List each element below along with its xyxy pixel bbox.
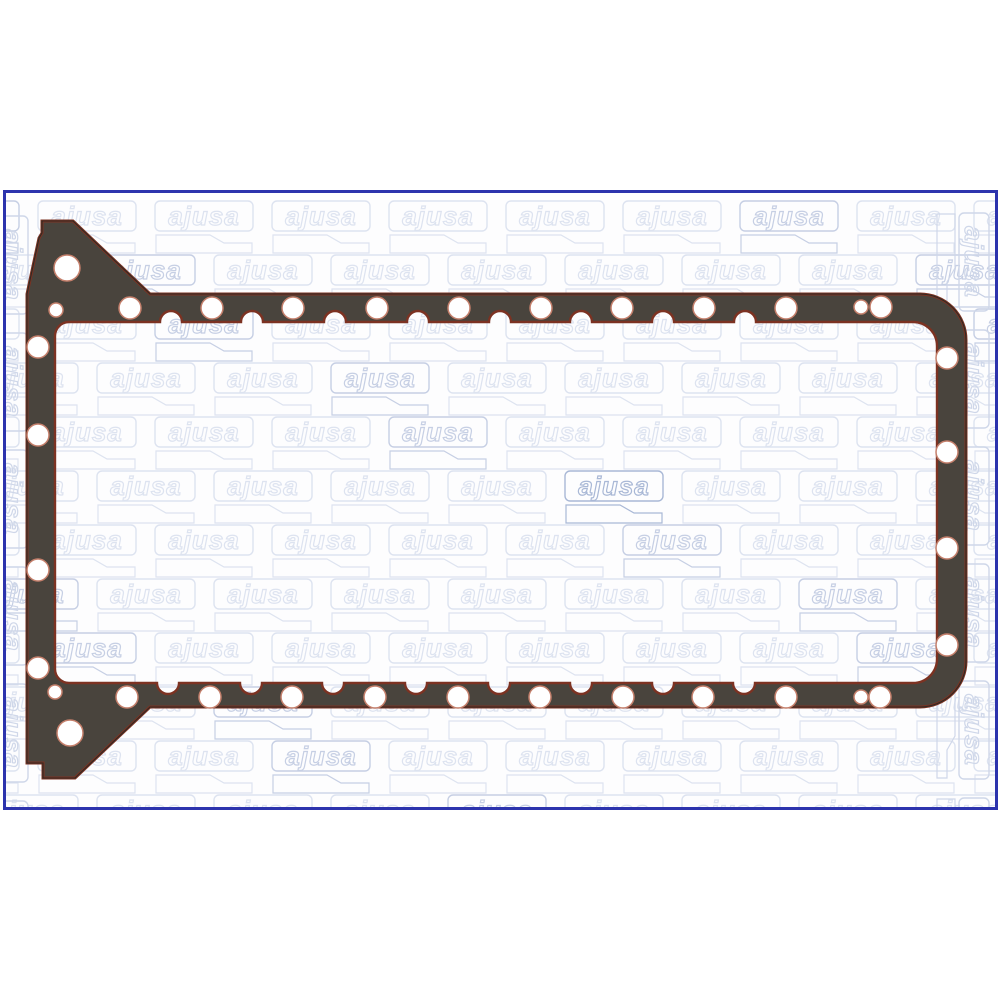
watermark-logo: ajusa	[565, 795, 663, 807]
watermark-brand-text: ajusa	[402, 525, 474, 555]
watermark-brand-text: ajusa	[929, 795, 995, 807]
watermark-logo: ajusa	[448, 471, 546, 523]
watermark-brand-text: ajusa	[753, 633, 825, 663]
watermark-brand-text: ajusa	[636, 417, 708, 447]
watermark-brand-text: ajusa	[753, 417, 825, 447]
watermark-logo: ajusa	[97, 471, 195, 523]
watermark-logo: ajusa	[740, 741, 838, 793]
watermark-logo: ajusa	[6, 684, 28, 782]
watermark-brand-text: ajusa	[695, 579, 767, 609]
watermark-brand-text: ajusa	[168, 417, 240, 447]
watermark-brand-text: ajusa	[402, 417, 474, 447]
watermark-brand-text: ajusa	[110, 471, 182, 501]
watermark-brand-text: ajusa	[110, 795, 182, 807]
watermark-logo: ajusa	[389, 525, 487, 577]
bolt-hole	[936, 441, 958, 463]
watermark-brand-text: ajusa	[753, 201, 825, 231]
watermark-brand-text: ajusa	[695, 795, 767, 807]
bolt-hole	[447, 686, 469, 708]
watermark-brand-text: ajusa	[51, 525, 123, 555]
watermark-brand-text: ajusa	[6, 463, 28, 535]
watermark-brand-text: ajusa	[870, 633, 942, 663]
watermark-logo: ajusa	[272, 201, 370, 253]
bolt-hole	[201, 297, 223, 319]
watermark-logo: ajusa	[740, 525, 838, 577]
watermark-brand-text: ajusa	[110, 363, 182, 393]
watermark-logo: ajusa	[448, 579, 546, 631]
watermark-logo: ajusa	[272, 525, 370, 577]
watermark-logo: ajusa	[155, 201, 253, 253]
watermark-brand-text: ajusa	[578, 579, 650, 609]
bolt-hole	[116, 686, 138, 708]
watermark-brand-text: ajusa	[636, 741, 708, 771]
bolt-hole	[27, 559, 49, 581]
watermark-layer: ajusaajusaajusaajusaajusaajusaajusaajusa…	[6, 201, 995, 807]
watermark-logo: ajusa	[506, 633, 604, 685]
watermark-logo: ajusa	[623, 633, 721, 685]
bolt-hole	[854, 300, 868, 314]
watermark-logo: ajusa	[565, 363, 663, 415]
bolt-hole	[870, 296, 892, 318]
watermark-brand-text: ajusa	[344, 255, 416, 285]
watermark-brand-text: ajusa	[6, 580, 28, 652]
watermark-brand-text: ajusa	[519, 525, 591, 555]
watermark-logo: ajusa	[6, 417, 19, 469]
watermark-logo: ajusa	[272, 417, 370, 469]
watermark-logo: ajusa	[799, 795, 897, 807]
watermark-brand-text: ajusa	[6, 229, 28, 301]
watermark-brand-text: ajusa	[461, 795, 533, 807]
bolt-hole	[27, 424, 49, 446]
watermark-brand-text: ajusa	[695, 363, 767, 393]
watermark-brand-text: ajusa	[753, 741, 825, 771]
bolt-hole	[54, 255, 80, 281]
watermark-brand-text: ajusa	[168, 633, 240, 663]
watermark-logo: ajusa	[214, 471, 312, 523]
watermark-logo: ajusa	[506, 525, 604, 577]
watermark-brand-text: ajusa	[168, 741, 240, 771]
watermark-brand-text: ajusa	[461, 363, 533, 393]
bolt-hole	[936, 347, 958, 369]
watermark-brand-text: ajusa	[227, 255, 299, 285]
bolt-hole	[854, 690, 868, 704]
watermark-logo: ajusa	[565, 471, 663, 523]
watermark-logo: ajusa	[331, 471, 429, 523]
watermark-logo: ajusa	[799, 471, 897, 523]
watermark-logo: ajusa	[6, 216, 28, 314]
watermark-brand-text: ajusa	[578, 795, 650, 807]
watermark-brand-text: ajusa	[51, 633, 123, 663]
product-photo: ajusaajusaajusaajusaajusaajusaajusaajusa…	[6, 193, 995, 807]
watermark-logo: ajusa	[155, 633, 253, 685]
watermark-brand-text: ajusa	[51, 417, 123, 447]
watermark-logo: ajusa	[331, 795, 429, 807]
bolt-hole	[936, 537, 958, 559]
watermark-logo: ajusa	[857, 201, 955, 253]
watermark-logo: ajusa	[272, 741, 370, 793]
watermark-logo: ajusa	[682, 579, 780, 631]
watermark-logo: ajusa	[682, 471, 780, 523]
watermark-logo: ajusa	[857, 741, 955, 793]
watermark-brand-text: ajusa	[695, 471, 767, 501]
watermark-brand-text: ajusa	[812, 363, 884, 393]
watermark-brand-text: ajusa	[285, 417, 357, 447]
bolt-hole	[282, 297, 304, 319]
watermark-brand-text: ajusa	[812, 471, 884, 501]
watermark-logo: ajusa	[6, 450, 28, 548]
watermark-logo: ajusa	[155, 525, 253, 577]
watermark-logo: ajusa	[682, 795, 780, 807]
watermark-logo: ajusa	[974, 525, 995, 577]
watermark-brand-text: ajusa	[870, 525, 942, 555]
watermark-brand-text: ajusa	[344, 579, 416, 609]
watermark-logo: ajusa	[623, 201, 721, 253]
watermark-brand-text: ajusa	[285, 201, 357, 231]
watermark-logo: ajusa	[565, 579, 663, 631]
watermark-logo: ajusa	[6, 333, 28, 431]
watermark-brand-text: ajusa	[344, 471, 416, 501]
bolt-hole	[57, 720, 83, 746]
watermark-logo: ajusa	[6, 567, 28, 665]
watermark-brand-text: ajusa	[402, 201, 474, 231]
bolt-hole	[119, 297, 141, 319]
watermark-brand-text: ajusa	[227, 471, 299, 501]
watermark-brand-text: ajusa	[636, 525, 708, 555]
bolt-hole	[448, 297, 470, 319]
watermark-brand-text: ajusa	[402, 633, 474, 663]
watermark-logo: ajusa	[799, 579, 897, 631]
bolt-hole	[27, 336, 49, 358]
watermark-brand-text: ajusa	[519, 741, 591, 771]
watermark-logo: ajusa	[331, 579, 429, 631]
watermark-logo: ajusa	[155, 741, 253, 793]
watermark-brand-text: ajusa	[519, 633, 591, 663]
watermark-logo: ajusa	[740, 417, 838, 469]
watermark-brand-text: ajusa	[168, 525, 240, 555]
watermark-brand-text: ajusa	[812, 579, 884, 609]
watermark-brand-text: ajusa	[285, 741, 357, 771]
page-background: ajusaajusaajusaajusaajusaajusaajusaajusa…	[0, 0, 1000, 1000]
watermark-logo: ajusa	[214, 579, 312, 631]
watermark-logo: ajusa	[214, 363, 312, 415]
watermark-brand-text: ajusa	[519, 201, 591, 231]
watermark-brand-text: ajusa	[636, 633, 708, 663]
watermark-logo: ajusa	[682, 363, 780, 415]
watermark-logo: ajusa	[389, 201, 487, 253]
watermark-logo: ajusa	[506, 201, 604, 253]
watermark-logo: ajusa	[97, 363, 195, 415]
watermark-logo: ajusa	[448, 795, 546, 807]
bolt-hole	[49, 303, 63, 317]
product-photo-frame: ajusaajusaajusaajusaajusaajusaajusaajusa…	[3, 190, 998, 810]
watermark-logo: ajusa	[506, 741, 604, 793]
bolt-hole	[48, 685, 62, 699]
watermark-brand-text: ajusa	[344, 363, 416, 393]
watermark-brand-text: ajusa	[959, 226, 989, 298]
watermark-brand-text: ajusa	[461, 471, 533, 501]
watermark-brand-text: ajusa	[519, 417, 591, 447]
watermark-logo: ajusa	[623, 525, 721, 577]
watermark-logo: ajusa	[740, 633, 838, 685]
bolt-hole	[530, 297, 552, 319]
watermark-logo: ajusa	[448, 363, 546, 415]
watermark-brand-text: ajusa	[870, 417, 942, 447]
watermark-logo: ajusa	[740, 201, 838, 253]
watermark-logo: ajusa	[389, 741, 487, 793]
watermark-logo: ajusa	[799, 363, 897, 415]
watermark-brand-text: ajusa	[227, 579, 299, 609]
bolt-hole	[936, 634, 958, 656]
bolt-hole	[692, 686, 714, 708]
watermark-brand-text: ajusa	[578, 471, 650, 501]
watermark-brand-text: ajusa	[461, 255, 533, 285]
bolt-hole	[364, 686, 386, 708]
watermark-brand-text: ajusa	[110, 579, 182, 609]
watermark-logo: ajusa	[623, 741, 721, 793]
watermark-logo: ajusa	[331, 363, 429, 415]
watermark-brand-text: ajusa	[959, 694, 989, 766]
watermark-brand-text: ajusa	[578, 255, 650, 285]
watermark-brand-text: ajusa	[812, 795, 884, 807]
bolt-hole	[281, 686, 303, 708]
bolt-hole	[529, 686, 551, 708]
bolt-hole	[366, 297, 388, 319]
watermark-brand-text: ajusa	[695, 255, 767, 285]
watermark-brand-text: ajusa	[285, 525, 357, 555]
watermark-logo: ajusa	[272, 633, 370, 685]
watermark-logo: ajusa	[97, 795, 195, 807]
watermark-brand-text: ajusa	[227, 795, 299, 807]
watermark-brand-text: ajusa	[870, 741, 942, 771]
watermark-brand-text: ajusa	[402, 741, 474, 771]
bolt-hole	[775, 686, 797, 708]
watermark-brand-text: ajusa	[6, 346, 28, 418]
bolt-hole	[199, 686, 221, 708]
watermark-brand-text: ajusa	[227, 363, 299, 393]
watermark-brand-text: ajusa	[578, 363, 650, 393]
watermark-brand-text: ajusa	[285, 633, 357, 663]
watermark-brand-text: ajusa	[636, 201, 708, 231]
bolt-hole	[611, 297, 633, 319]
watermark-logo: ajusa	[623, 417, 721, 469]
watermark-brand-text: ajusa	[461, 579, 533, 609]
watermark-brand-text: ajusa	[344, 795, 416, 807]
watermark-logo: ajusa	[155, 417, 253, 469]
watermark-brand-text: ajusa	[812, 255, 884, 285]
bolt-hole	[612, 686, 634, 708]
watermark-brand-text: ajusa	[870, 201, 942, 231]
watermark-logo: ajusa	[389, 417, 487, 469]
watermark-brand-text: ajusa	[753, 525, 825, 555]
bolt-hole	[869, 686, 891, 708]
bolt-hole	[693, 297, 715, 319]
bolt-hole	[775, 297, 797, 319]
watermark-logo: ajusa	[389, 633, 487, 685]
watermark-logo: ajusa	[506, 417, 604, 469]
bolt-hole	[27, 657, 49, 679]
watermark-logo: ajusa	[97, 579, 195, 631]
watermark-brand-text: ajusa	[168, 201, 240, 231]
watermark-logo: ajusa	[214, 795, 312, 807]
watermark-brand-text: ajusa	[6, 697, 28, 769]
